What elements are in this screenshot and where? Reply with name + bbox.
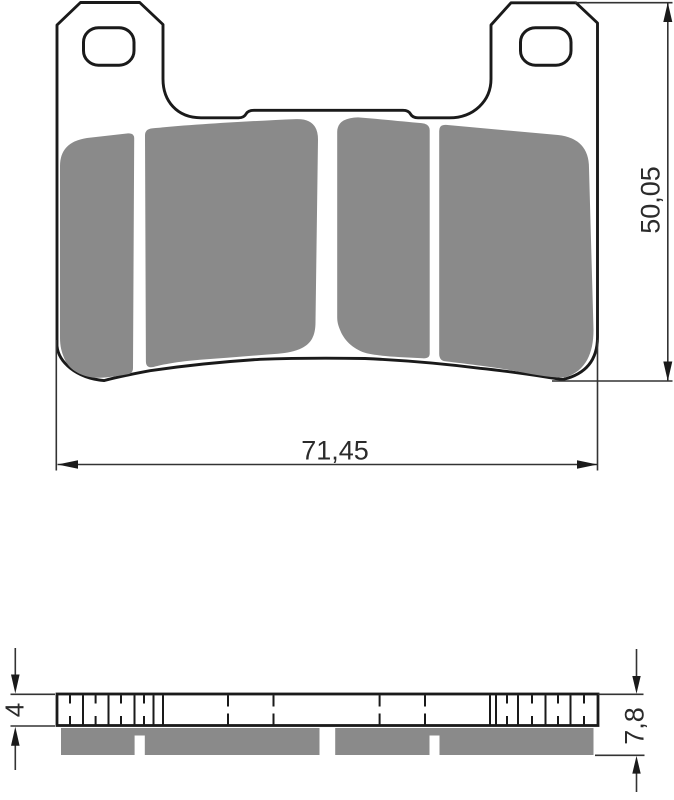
- svg-text:50,05: 50,05: [636, 166, 666, 234]
- svg-text:4: 4: [0, 703, 30, 717]
- svg-text:71,45: 71,45: [301, 436, 369, 466]
- svg-text:7,8: 7,8: [620, 707, 650, 745]
